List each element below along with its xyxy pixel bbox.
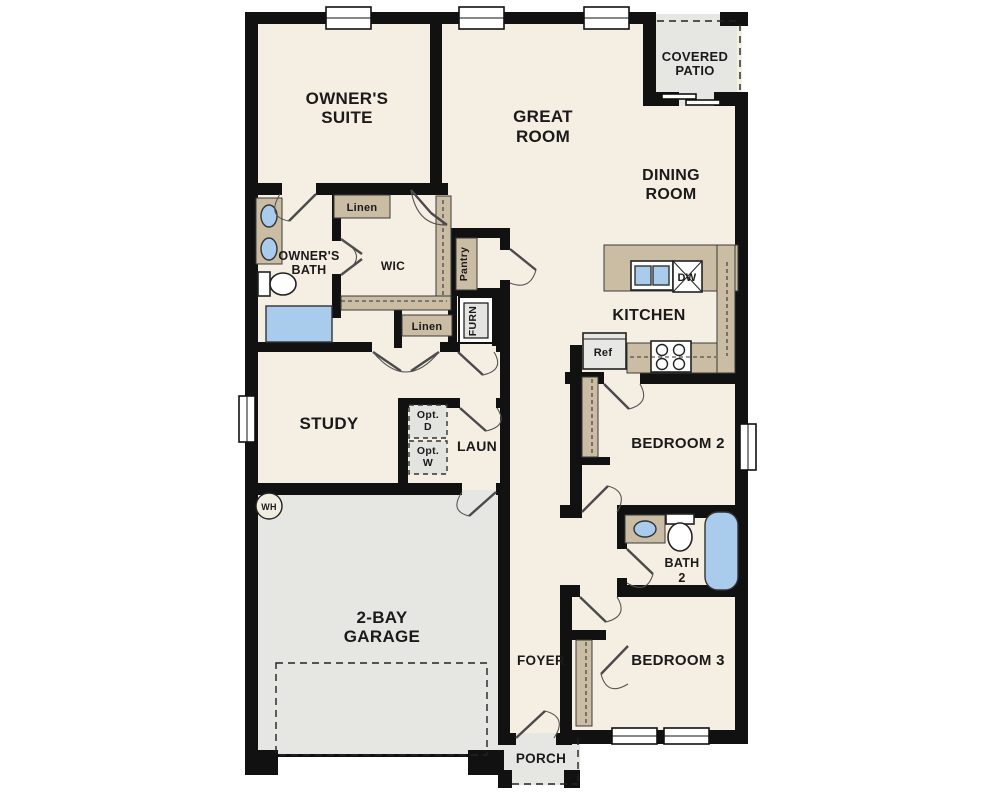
window: [612, 728, 657, 744]
window: [459, 7, 504, 29]
window: [740, 424, 756, 470]
wall-segment: [570, 463, 582, 512]
wall-owners-suite-east: [430, 24, 442, 185]
floorplan-page: OWNER'S SUITE GREAT ROOM COVERED PATIO D…: [0, 0, 1000, 800]
label-bedroom2: BEDROOM 2: [631, 435, 725, 452]
kitchen-sink-basin: [653, 266, 669, 285]
label-furnace: FURN: [467, 306, 479, 336]
label-dining-room: DINING: [642, 167, 700, 184]
wall-segment: [394, 308, 402, 348]
label-porch: PORCH: [516, 751, 566, 766]
kitchen-counter-right: [717, 245, 735, 373]
bedroom2-closet: [582, 377, 598, 457]
wall-porch-corner-left: [498, 770, 512, 788]
wall-segment: [500, 228, 510, 250]
wall-laundry-west: [398, 398, 408, 493]
wall-garage-corner-left: [245, 750, 278, 775]
window: [584, 7, 629, 29]
wall-segment: [570, 345, 582, 372]
wall-segment: [316, 183, 448, 195]
label-water-heater: WH: [261, 502, 277, 512]
toilet-icon: [666, 514, 694, 551]
wall-study-north: [252, 342, 372, 352]
stove-icon: [651, 341, 691, 372]
window: [664, 728, 709, 744]
label-great-room: GREAT: [513, 107, 573, 126]
label-owners-bath-line2: BATH: [292, 263, 327, 277]
wall-segment: [560, 585, 580, 597]
wall-segment: [502, 733, 516, 745]
label-opt-washer: Opt.: [417, 445, 439, 457]
label-opt-washer-line2: W: [423, 457, 433, 469]
label-bedroom3: BEDROOM 3: [631, 652, 725, 669]
label-great-room-line2: ROOM: [516, 127, 570, 146]
wall-exterior-left: [245, 12, 258, 775]
label-garage: 2-BAY: [357, 608, 408, 627]
wall-corridor-east: [570, 384, 582, 463]
window: [326, 7, 371, 29]
label-owners-suite: OWNER'S: [306, 89, 389, 108]
label-owners-bath: OWNER'S: [278, 249, 339, 263]
label-opt-dryer: Opt.: [417, 409, 439, 421]
wall-segment: [496, 483, 510, 495]
label-dining-room-line2: ROOM: [646, 186, 697, 203]
label-bath2: BATH: [665, 556, 700, 570]
label-study: STUDY: [299, 414, 358, 433]
wall-segment: [332, 274, 341, 318]
wic-shelf-bottom: [341, 296, 451, 310]
wall-segment: [556, 733, 572, 745]
label-linen-lower: Linen: [412, 321, 443, 333]
wall-garage-top: [252, 483, 462, 495]
label-foyer: FOYER: [517, 653, 565, 668]
label-owners-suite-line2: SUITE: [321, 108, 373, 127]
label-linen-upper: Linen: [347, 202, 378, 214]
label-dishwasher: DW: [678, 272, 697, 284]
window: [239, 396, 255, 442]
label-bath2-line2: 2: [678, 571, 685, 585]
label-wic: WIC: [381, 259, 405, 273]
label-garage-line2: GARAGE: [344, 627, 420, 646]
wall-bed3-south: [570, 730, 748, 744]
kitchen-sink-basin: [635, 266, 651, 285]
label-refrigerator: Ref: [594, 347, 613, 359]
label-opt-dryer-line2: D: [424, 421, 432, 433]
wall-kitchen-south: [640, 372, 748, 384]
sink-icon: [261, 238, 277, 260]
wall-segment: [252, 183, 282, 195]
shower-icon: [266, 306, 332, 342]
wall-segment: [440, 342, 460, 352]
wall-exterior-right: [735, 100, 748, 744]
sink-icon: [634, 521, 656, 537]
label-laundry: LAUN: [457, 438, 497, 454]
toilet-icon: [258, 272, 270, 296]
wall-patio-left: [643, 12, 656, 105]
label-covered-patio: COVERED: [662, 49, 728, 64]
wall-segment: [560, 505, 582, 518]
bedroom3-closet: [576, 640, 592, 726]
floorplan-drawing: OWNER'S SUITE GREAT ROOM COVERED PATIO D…: [0, 0, 1000, 800]
wall-segment: [572, 630, 606, 640]
bathtub-icon: [705, 512, 738, 590]
label-covered-patio-line2: PATIO: [675, 63, 714, 78]
wall-patio-corner: [720, 12, 748, 26]
wall-corridor-west: [498, 495, 510, 745]
label-pantry: Pantry: [458, 247, 470, 281]
label-kitchen: KITCHEN: [612, 307, 685, 324]
